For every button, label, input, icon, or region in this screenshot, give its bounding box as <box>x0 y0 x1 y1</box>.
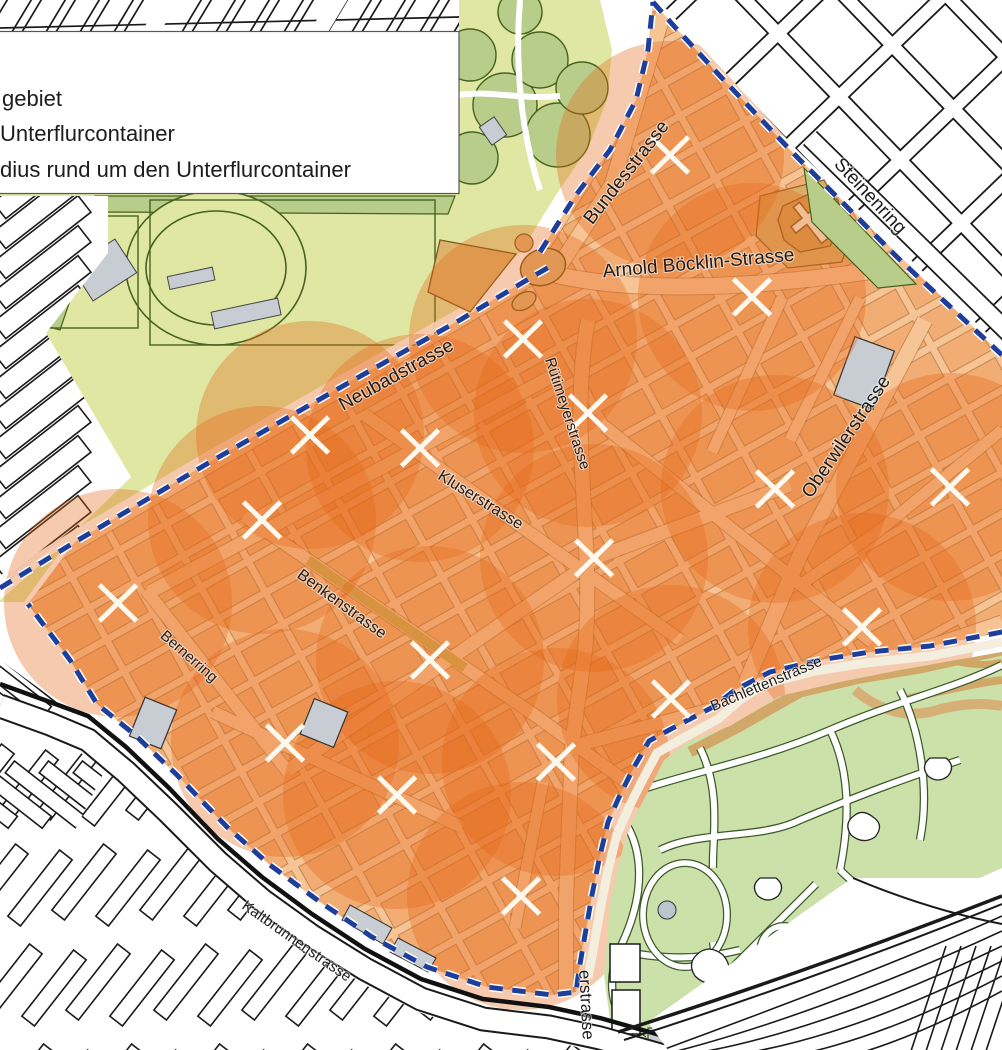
svg-text:erstrasse: erstrasse <box>575 969 598 1040</box>
svg-text:gebiet: gebiet <box>2 86 62 111</box>
svg-text:Unterflurcontainer: Unterflurcontainer <box>0 121 175 146</box>
svg-text:dius rund um den Unterflurcont: dius rund um den Unterflurcontainer <box>0 157 351 182</box>
